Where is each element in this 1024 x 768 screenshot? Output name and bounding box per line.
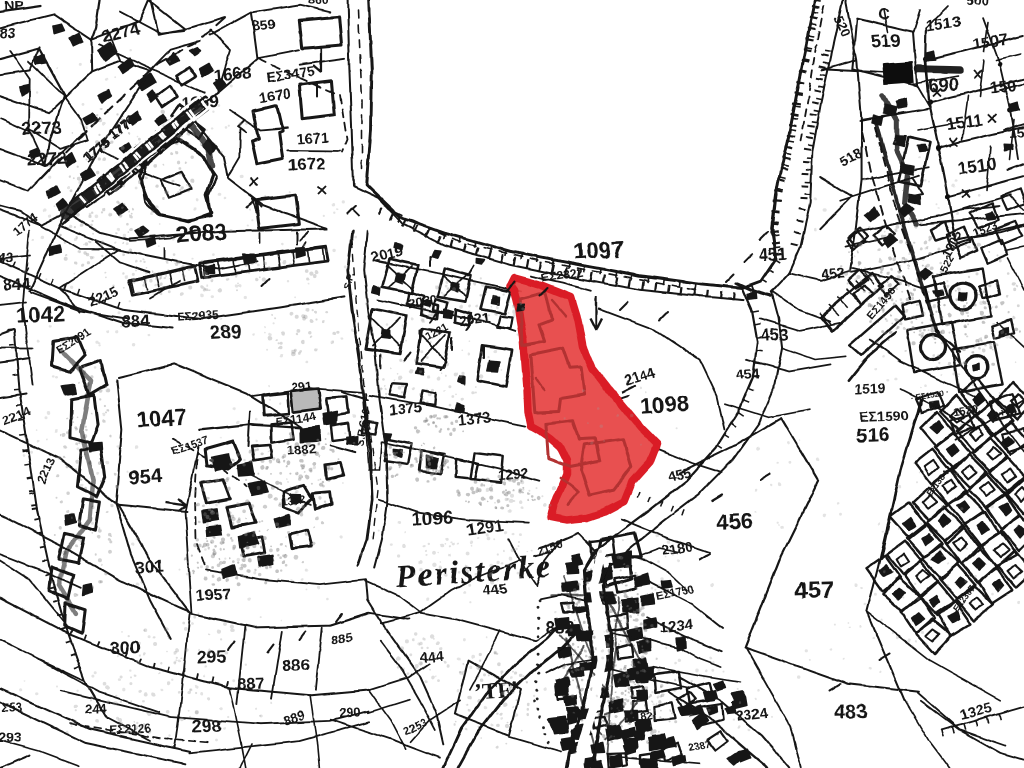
- svg-text:886: 886: [281, 656, 310, 676]
- svg-text:887: 887: [237, 676, 264, 694]
- svg-text:EΣ1590: EΣ1590: [859, 407, 909, 425]
- svg-text:519: 519: [870, 30, 901, 52]
- svg-text:884: 884: [121, 311, 151, 331]
- svg-text:C: C: [878, 7, 890, 24]
- svg-text:885: 885: [330, 630, 354, 648]
- svg-text:2180: 2180: [661, 538, 694, 557]
- svg-text:1375: 1375: [388, 399, 423, 419]
- svg-text:1042: 1042: [16, 301, 66, 329]
- svg-text:291: 291: [291, 378, 312, 393]
- svg-text:244: 244: [84, 700, 107, 717]
- svg-text:1098: 1098: [639, 390, 690, 418]
- svg-text:483: 483: [834, 700, 868, 723]
- svg-text:2083: 2083: [175, 218, 228, 248]
- svg-text:43: 43: [0, 249, 13, 265]
- svg-text:456: 456: [716, 508, 754, 535]
- svg-text:500: 500: [967, 0, 989, 8]
- svg-text:1096: 1096: [411, 508, 454, 531]
- svg-text:444: 444: [419, 648, 446, 666]
- svg-text:1519: 1519: [854, 380, 886, 397]
- svg-text:298: 298: [191, 715, 222, 736]
- svg-text:954: 954: [128, 465, 164, 489]
- svg-text:83: 83: [0, 25, 16, 42]
- svg-text:295: 295: [196, 646, 227, 667]
- svg-text:844: 844: [3, 276, 31, 294]
- svg-text:Σ53: Σ53: [2, 701, 23, 715]
- svg-text:859: 859: [251, 16, 276, 34]
- svg-text:1292: 1292: [497, 465, 529, 483]
- svg-text:289: 289: [209, 321, 242, 344]
- svg-text:1672: 1672: [287, 154, 326, 175]
- svg-text:1047: 1047: [135, 404, 187, 433]
- svg-text:1957: 1957: [196, 586, 233, 605]
- svg-text:516: 516: [856, 424, 890, 447]
- svg-text:290: 290: [338, 704, 361, 720]
- svg-text:1097: 1097: [572, 236, 624, 265]
- svg-text:453: 453: [761, 326, 789, 344]
- svg-text:1234: 1234: [659, 616, 695, 636]
- svg-text:EΣ2126: EΣ2126: [109, 721, 152, 736]
- svg-text:454: 454: [736, 365, 760, 382]
- svg-text:457: 457: [793, 576, 834, 604]
- svg-text:1671: 1671: [297, 129, 329, 147]
- svg-text:301: 301: [134, 556, 165, 577]
- svg-text:860: 860: [308, 0, 328, 7]
